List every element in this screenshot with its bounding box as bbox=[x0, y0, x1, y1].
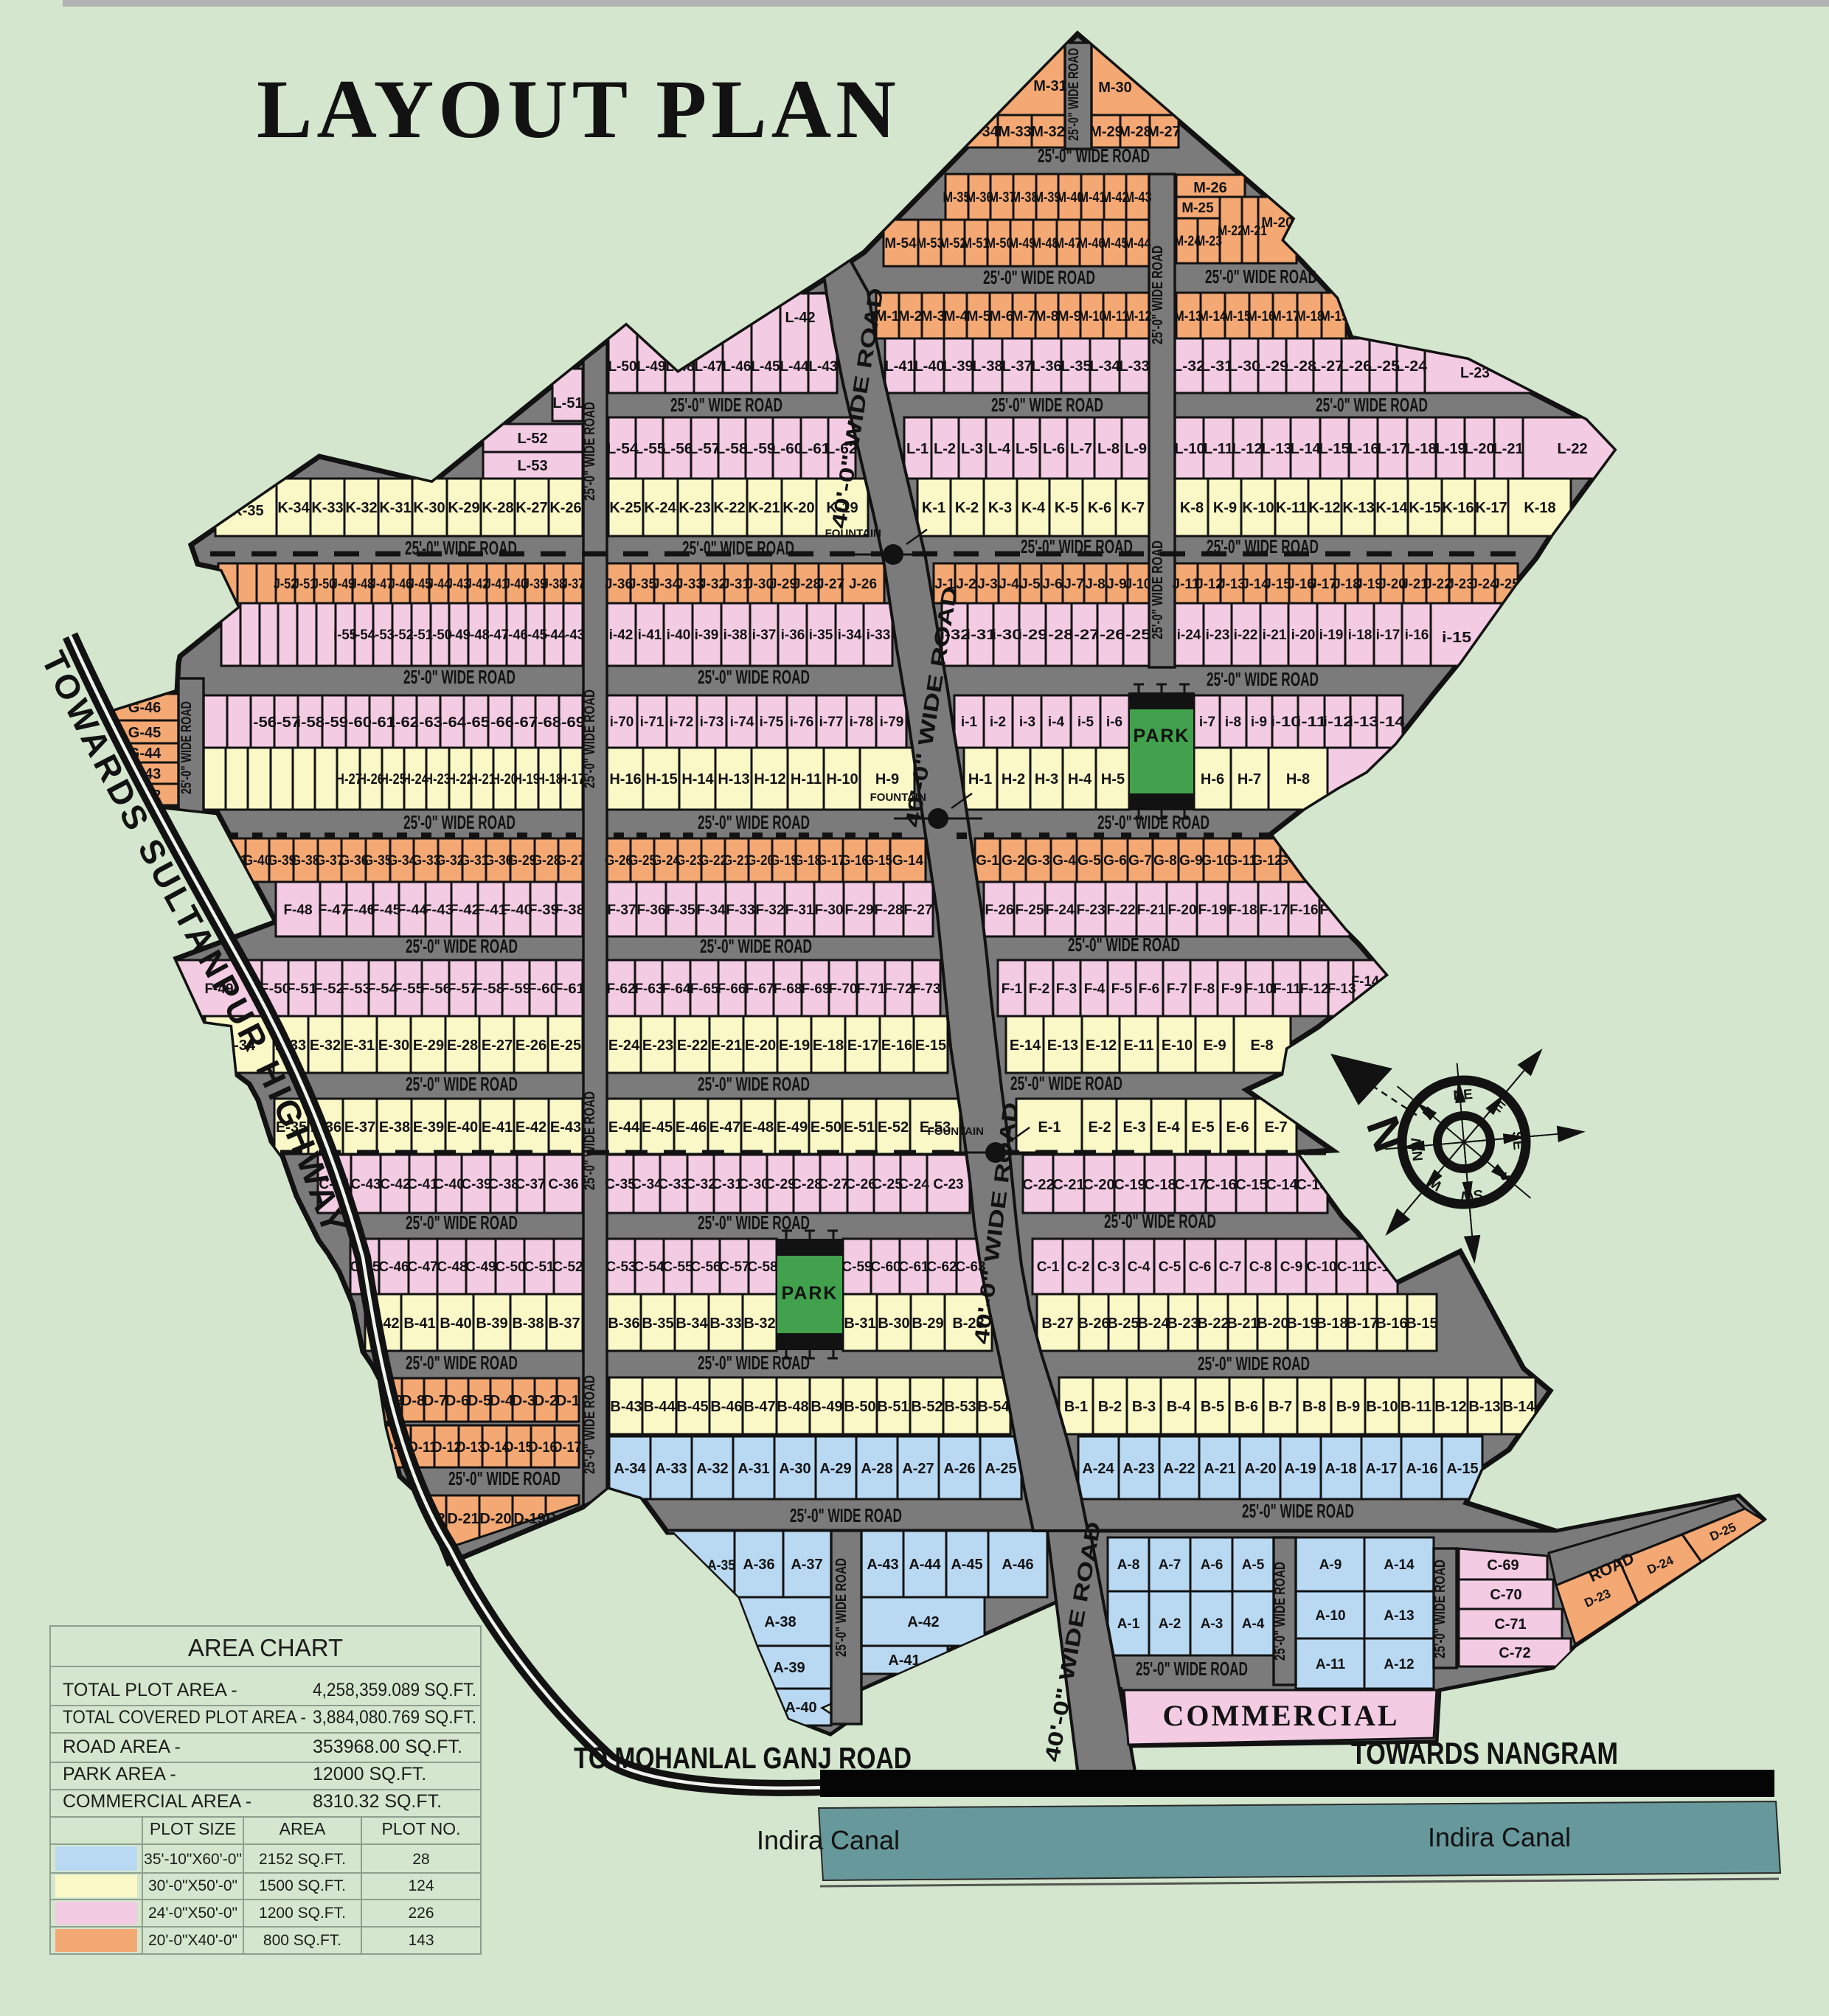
svg-text:K-7: K-7 bbox=[1121, 500, 1145, 516]
svg-text:L-12: L-12 bbox=[1232, 441, 1262, 457]
svg-text:E-12: E-12 bbox=[1086, 1037, 1117, 1054]
svg-text:A-36: A-36 bbox=[743, 1557, 774, 1573]
svg-text:L-15: L-15 bbox=[1319, 441, 1349, 457]
svg-text:25'-0" WIDE ROAD: 25'-0" WIDE ROAD bbox=[448, 1467, 560, 1490]
svg-text:C-46: C-46 bbox=[378, 1259, 409, 1275]
svg-text:K-16: K-16 bbox=[1442, 500, 1474, 516]
svg-text:25'-0" WIDE ROAD: 25'-0" WIDE ROAD bbox=[1316, 394, 1428, 416]
svg-text:NW: NW bbox=[1409, 1137, 1426, 1161]
svg-text:C-7: C-7 bbox=[1219, 1259, 1242, 1275]
svg-text:C-39: C-39 bbox=[461, 1177, 491, 1192]
svg-text:J-26: J-26 bbox=[849, 577, 877, 592]
svg-text:C-53: C-53 bbox=[605, 1259, 636, 1275]
svg-text:D-17: D-17 bbox=[553, 1439, 582, 1456]
svg-text:G-6: G-6 bbox=[1103, 853, 1127, 869]
svg-text:G-4: G-4 bbox=[1052, 853, 1076, 869]
svg-text:D-3: D-3 bbox=[512, 1393, 535, 1409]
svg-text:i-7: i-7 bbox=[1199, 715, 1215, 730]
svg-text:F-37: F-37 bbox=[607, 903, 636, 918]
svg-text:L-4: L-4 bbox=[988, 441, 1011, 457]
svg-text:25'-0" WIDE ROAD: 25'-0" WIDE ROAD bbox=[1432, 1560, 1448, 1658]
svg-text:F-70: F-70 bbox=[828, 981, 857, 997]
svg-text:25'-0" WIDE ROAD: 25'-0" WIDE ROAD bbox=[405, 537, 517, 559]
svg-text:L-51: L-51 bbox=[552, 395, 583, 411]
svg-text:G-5: G-5 bbox=[1077, 853, 1101, 869]
svg-text:K-13: K-13 bbox=[1342, 500, 1374, 516]
svg-text:M-27: M-27 bbox=[1147, 124, 1181, 140]
svg-text:F-20: F-20 bbox=[1167, 903, 1196, 918]
svg-text:B-45: B-45 bbox=[676, 1399, 708, 1415]
svg-text:L-35: L-35 bbox=[1061, 358, 1091, 375]
svg-text:B-27: B-27 bbox=[1041, 1315, 1073, 1332]
svg-text:PLOT NO.: PLOT NO. bbox=[382, 1819, 461, 1838]
svg-text:COMMERCIAL AREA -: COMMERCIAL AREA - bbox=[63, 1791, 251, 1812]
svg-text:i-78: i-78 bbox=[850, 715, 874, 730]
svg-text:H-14: H-14 bbox=[681, 771, 714, 788]
svg-text:E-8: E-8 bbox=[1250, 1037, 1273, 1054]
svg-text:A-3: A-3 bbox=[1201, 1616, 1224, 1632]
svg-text:F-26: F-26 bbox=[985, 903, 1013, 918]
svg-text:K-2: K-2 bbox=[955, 500, 979, 516]
svg-text:B-48: B-48 bbox=[777, 1399, 808, 1415]
svg-text:F-6: F-6 bbox=[1139, 981, 1160, 997]
svg-text:B-43: B-43 bbox=[610, 1399, 642, 1415]
svg-text:i-69: i-69 bbox=[557, 715, 585, 731]
svg-text:L-5: L-5 bbox=[1016, 441, 1038, 457]
svg-text:TOTAL COVERED PLOT AREA -: TOTAL COVERED PLOT AREA - bbox=[63, 1707, 306, 1728]
svg-text:B-21: B-21 bbox=[1226, 1315, 1258, 1332]
svg-text:K-5: K-5 bbox=[1055, 500, 1078, 516]
svg-text:H-10: H-10 bbox=[826, 771, 858, 788]
svg-text:J-9: J-9 bbox=[1106, 577, 1126, 592]
svg-text:K-21: K-21 bbox=[748, 500, 780, 516]
svg-text:i-18: i-18 bbox=[1348, 628, 1372, 643]
svg-text:353968.00 SQ.FT.: 353968.00 SQ.FT. bbox=[313, 1737, 462, 1757]
svg-text:25'-0" WIDE ROAD: 25'-0" WIDE ROAD bbox=[1150, 246, 1166, 344]
svg-text:L-41: L-41 bbox=[884, 358, 914, 375]
svg-text:D-5: D-5 bbox=[468, 1393, 491, 1409]
svg-text:25'-0" WIDE ROAD: 25'-0" WIDE ROAD bbox=[1242, 1500, 1354, 1522]
svg-text:25'-0" WIDE ROAD: 25'-0" WIDE ROAD bbox=[1010, 1072, 1122, 1094]
svg-text:L-40: L-40 bbox=[914, 358, 944, 375]
svg-text:L-34: L-34 bbox=[1089, 358, 1120, 375]
svg-text:D-2: D-2 bbox=[534, 1393, 558, 1409]
svg-text:F-25: F-25 bbox=[1015, 903, 1044, 918]
svg-text:25'-0" WIDE ROAD: 25'-0" WIDE ROAD bbox=[698, 1073, 810, 1095]
svg-text:B-40: B-40 bbox=[440, 1315, 471, 1332]
svg-text:A-40: A-40 bbox=[785, 1700, 816, 1716]
svg-text:K-33: K-33 bbox=[311, 500, 343, 516]
svg-text:K-28: K-28 bbox=[482, 500, 513, 516]
svg-text:M-6: M-6 bbox=[990, 309, 1014, 324]
svg-text:M-25: M-25 bbox=[1181, 201, 1214, 216]
svg-text:B-51: B-51 bbox=[877, 1399, 909, 1415]
svg-text:J-7: J-7 bbox=[1063, 577, 1083, 592]
svg-text:C-69: C-69 bbox=[1487, 1557, 1519, 1574]
svg-text:i-4: i-4 bbox=[1048, 715, 1065, 730]
svg-text:C-59: C-59 bbox=[841, 1259, 872, 1275]
svg-text:A-25: A-25 bbox=[985, 1461, 1016, 1477]
svg-text:L-19: L-19 bbox=[1435, 441, 1465, 457]
svg-text:C-42: C-42 bbox=[380, 1177, 410, 1192]
svg-text:E-30: E-30 bbox=[378, 1037, 409, 1054]
svg-text:1200 SQ.FT.: 1200 SQ.FT. bbox=[259, 1905, 346, 1922]
svg-text:i-17: i-17 bbox=[1376, 628, 1401, 643]
svg-text:C-47: C-47 bbox=[407, 1259, 437, 1275]
svg-text:B-25: B-25 bbox=[1107, 1315, 1139, 1332]
svg-text:C-52: C-52 bbox=[552, 1259, 583, 1275]
svg-text:i-73: i-73 bbox=[700, 715, 724, 730]
svg-text:25'-0" WIDE ROAD: 25'-0" WIDE ROAD bbox=[403, 666, 516, 688]
svg-text:A-4: A-4 bbox=[1242, 1616, 1265, 1632]
svg-text:K-23: K-23 bbox=[678, 500, 710, 516]
svg-text:B-53: B-53 bbox=[944, 1399, 976, 1415]
svg-text:K-12: K-12 bbox=[1308, 500, 1340, 516]
svg-text:C-20: C-20 bbox=[1083, 1177, 1114, 1193]
svg-text:C-48: C-48 bbox=[437, 1259, 467, 1275]
svg-text:H-8: H-8 bbox=[1286, 771, 1310, 788]
svg-text:i-74: i-74 bbox=[730, 715, 754, 730]
svg-text:25'-0" WIDE ROAD: 25'-0" WIDE ROAD bbox=[790, 1504, 902, 1526]
svg-text:F-72: F-72 bbox=[884, 981, 912, 997]
svg-text:20'-0"X40'-0": 20'-0"X40'-0" bbox=[148, 1932, 237, 1949]
svg-text:K-1: K-1 bbox=[922, 500, 945, 516]
svg-text:E-41: E-41 bbox=[482, 1119, 513, 1136]
svg-text:K-17: K-17 bbox=[1475, 500, 1507, 516]
svg-text:C-27: C-27 bbox=[818, 1177, 849, 1192]
svg-text:M-43: M-43 bbox=[1125, 190, 1152, 206]
svg-text:E-29: E-29 bbox=[413, 1037, 444, 1054]
svg-text:B-16: B-16 bbox=[1375, 1315, 1407, 1332]
svg-text:K-29: K-29 bbox=[448, 500, 479, 516]
svg-text:F-24: F-24 bbox=[1045, 903, 1075, 918]
svg-text:C-49: C-49 bbox=[465, 1259, 496, 1275]
svg-text:i-33: i-33 bbox=[867, 628, 891, 643]
svg-text:i-75: i-75 bbox=[760, 715, 784, 730]
svg-text:25'-0" WIDE ROAD: 25'-0" WIDE ROAD bbox=[403, 811, 516, 833]
svg-text:E-44: E-44 bbox=[608, 1119, 640, 1136]
svg-text:F-73: F-73 bbox=[912, 981, 940, 997]
svg-text:H-15: H-15 bbox=[645, 771, 677, 788]
svg-text:D-7: D-7 bbox=[423, 1393, 447, 1409]
svg-text:C-1: C-1 bbox=[1037, 1259, 1060, 1275]
svg-text:E-3: E-3 bbox=[1122, 1119, 1145, 1136]
svg-text:F-38: F-38 bbox=[554, 903, 585, 918]
svg-text:B-22: B-22 bbox=[1197, 1315, 1229, 1332]
svg-text:25'-0" WIDE ROAD: 25'-0" WIDE ROAD bbox=[406, 1352, 518, 1374]
svg-text:A-23: A-23 bbox=[1122, 1461, 1154, 1477]
svg-text:A-9: A-9 bbox=[1319, 1557, 1342, 1573]
svg-text:i-22: i-22 bbox=[1234, 628, 1258, 643]
svg-text:25'-0" WIDE ROAD: 25'-0" WIDE ROAD bbox=[406, 1212, 518, 1234]
svg-text:B-47: B-47 bbox=[743, 1399, 775, 1415]
svg-text:25'-0" WIDE ROAD: 25'-0" WIDE ROAD bbox=[1021, 535, 1133, 557]
svg-text:F-62: F-62 bbox=[606, 981, 635, 997]
svg-text:K-3: K-3 bbox=[988, 500, 1012, 516]
svg-text:K-11: K-11 bbox=[1276, 500, 1307, 516]
svg-text:E-15: E-15 bbox=[915, 1037, 946, 1054]
svg-text:A-33: A-33 bbox=[655, 1461, 687, 1477]
svg-text:i-21: i-21 bbox=[1263, 628, 1287, 643]
svg-text:25'-0" WIDE ROAD: 25'-0" WIDE ROAD bbox=[1097, 811, 1209, 833]
svg-text:E-32: E-32 bbox=[310, 1037, 341, 1054]
svg-text:25'-0" WIDE ROAD: 25'-0" WIDE ROAD bbox=[1198, 1352, 1310, 1374]
svg-text:C-3: C-3 bbox=[1097, 1259, 1120, 1275]
svg-text:C-6: C-6 bbox=[1189, 1259, 1212, 1275]
svg-text:25'-0" WIDE ROAD: 25'-0" WIDE ROAD bbox=[983, 266, 1095, 288]
svg-text:25'-0" WIDE ROAD: 25'-0" WIDE ROAD bbox=[698, 1352, 810, 1374]
svg-text:F-7: F-7 bbox=[1167, 981, 1188, 997]
svg-text:C-43: C-43 bbox=[350, 1177, 381, 1192]
svg-text:E-22: E-22 bbox=[677, 1037, 708, 1054]
svg-text:C-57: C-57 bbox=[719, 1259, 749, 1275]
svg-text:B-46: B-46 bbox=[710, 1399, 742, 1415]
svg-text:B-17: B-17 bbox=[1346, 1315, 1378, 1332]
svg-text:L-37: L-37 bbox=[1002, 358, 1032, 375]
svg-text:E-38: E-38 bbox=[379, 1119, 410, 1136]
svg-text:E-11: E-11 bbox=[1123, 1037, 1153, 1054]
svg-text:G-27: G-27 bbox=[557, 853, 586, 869]
svg-text:E-10: E-10 bbox=[1162, 1037, 1193, 1054]
svg-text:E-47: E-47 bbox=[709, 1119, 740, 1136]
svg-text:C-11: C-11 bbox=[1337, 1259, 1367, 1275]
svg-text:A-30: A-30 bbox=[779, 1461, 811, 1477]
svg-text:25'-0" WIDE ROAD: 25'-0" WIDE ROAD bbox=[698, 666, 810, 688]
svg-text:F-65: F-65 bbox=[690, 981, 719, 997]
svg-text:K-8: K-8 bbox=[1180, 500, 1204, 516]
svg-text:K-32: K-32 bbox=[345, 500, 377, 516]
svg-text:L-9: L-9 bbox=[1125, 441, 1147, 457]
svg-text:M-3: M-3 bbox=[921, 309, 945, 324]
svg-text:E-49: E-49 bbox=[777, 1119, 808, 1136]
svg-text:K-24: K-24 bbox=[644, 500, 676, 516]
svg-text:25'-0" WIDE ROAD: 25'-0" WIDE ROAD bbox=[1150, 541, 1166, 639]
svg-text:L-22: L-22 bbox=[1557, 441, 1587, 457]
svg-text:L-21: L-21 bbox=[1493, 441, 1523, 457]
svg-text:C-24: C-24 bbox=[898, 1177, 929, 1192]
svg-text:B-4: B-4 bbox=[1167, 1399, 1191, 1415]
svg-text:C-62: C-62 bbox=[926, 1259, 957, 1275]
svg-text:PARK AREA -: PARK AREA - bbox=[63, 1764, 176, 1784]
svg-text:H-13: H-13 bbox=[718, 771, 749, 788]
svg-text:L-43: L-43 bbox=[808, 359, 837, 375]
svg-text:G-14: G-14 bbox=[892, 853, 924, 869]
svg-text:J-5: J-5 bbox=[1020, 577, 1041, 592]
svg-text:D-19: D-19 bbox=[513, 1511, 545, 1527]
svg-text:E-2: E-2 bbox=[1088, 1119, 1111, 1136]
svg-text:E-40: E-40 bbox=[447, 1119, 478, 1136]
svg-text:F-67: F-67 bbox=[745, 981, 774, 997]
svg-text:A-28: A-28 bbox=[861, 1461, 892, 1477]
svg-text:E-51: E-51 bbox=[844, 1119, 875, 1136]
svg-text:E-18: E-18 bbox=[813, 1037, 844, 1054]
svg-text:C-70: C-70 bbox=[1490, 1587, 1521, 1603]
svg-text:C-36: C-36 bbox=[548, 1177, 578, 1192]
svg-text:i-16: i-16 bbox=[1405, 628, 1429, 643]
svg-text:L-42: L-42 bbox=[785, 310, 815, 326]
svg-text:J-3: J-3 bbox=[977, 577, 997, 592]
svg-text:F-31: F-31 bbox=[785, 903, 814, 918]
svg-text:F-69: F-69 bbox=[801, 981, 830, 997]
svg-text:D-8: D-8 bbox=[401, 1393, 425, 1409]
svg-text:H-1: H-1 bbox=[968, 771, 992, 788]
svg-text:K-15: K-15 bbox=[1409, 500, 1440, 516]
svg-text:TOWARDS NANGRAM: TOWARDS NANGRAM bbox=[1351, 1736, 1618, 1770]
svg-text:B-36: B-36 bbox=[608, 1315, 639, 1332]
svg-text:FOUNTAIN: FOUNTAIN bbox=[825, 527, 881, 540]
svg-text:K-31: K-31 bbox=[379, 500, 411, 516]
svg-text:800 SQ.FT.: 800 SQ.FT. bbox=[263, 1932, 341, 1949]
svg-text:C-60: C-60 bbox=[870, 1259, 900, 1275]
svg-text:E-17: E-17 bbox=[847, 1037, 878, 1054]
svg-text:M-26: M-26 bbox=[1193, 180, 1227, 196]
svg-text:12000 SQ.FT.: 12000 SQ.FT. bbox=[313, 1764, 426, 1784]
svg-text:F-5: F-5 bbox=[1111, 981, 1133, 997]
svg-text:A-15: A-15 bbox=[1446, 1461, 1478, 1477]
svg-text:K-6: K-6 bbox=[1088, 500, 1111, 516]
svg-text:L-6: L-6 bbox=[1043, 441, 1065, 457]
svg-text:C-9: C-9 bbox=[1280, 1259, 1303, 1275]
svg-text:D-20: D-20 bbox=[479, 1511, 511, 1527]
svg-text:B-41: B-41 bbox=[403, 1315, 435, 1332]
svg-text:B-18: B-18 bbox=[1316, 1315, 1347, 1332]
svg-text:A-32: A-32 bbox=[696, 1461, 728, 1477]
svg-text:F-16: F-16 bbox=[1289, 903, 1318, 918]
svg-text:L-18: L-18 bbox=[1406, 441, 1436, 457]
svg-text:M-54: M-54 bbox=[884, 236, 917, 251]
svg-text:F-19: F-19 bbox=[1198, 903, 1226, 918]
svg-text:C-10: C-10 bbox=[1306, 1259, 1336, 1275]
svg-text:A-11: A-11 bbox=[1316, 1657, 1346, 1672]
svg-text:E-31: E-31 bbox=[344, 1037, 375, 1054]
svg-text:C-8: C-8 bbox=[1249, 1259, 1272, 1275]
svg-text:L-24: L-24 bbox=[1395, 358, 1428, 375]
svg-text:i-77: i-77 bbox=[819, 715, 844, 730]
svg-text:i-43: i-43 bbox=[561, 628, 585, 643]
svg-text:C-4: C-4 bbox=[1128, 1259, 1150, 1275]
svg-text:K-14: K-14 bbox=[1375, 500, 1408, 516]
svg-text:B-7: B-7 bbox=[1268, 1399, 1292, 1415]
svg-text:B-54: B-54 bbox=[977, 1399, 1010, 1415]
svg-text:TOTAL PLOT AREA -: TOTAL PLOT AREA - bbox=[63, 1680, 237, 1700]
svg-text:i-35: i-35 bbox=[809, 628, 833, 643]
svg-text:C-51: C-51 bbox=[524, 1259, 555, 1275]
svg-text:A-39: A-39 bbox=[773, 1660, 805, 1676]
svg-text:A-17: A-17 bbox=[1365, 1461, 1397, 1477]
svg-text:25'-0" WIDE ROAD: 25'-0" WIDE ROAD bbox=[1068, 934, 1180, 956]
svg-text:H-2: H-2 bbox=[1002, 771, 1025, 788]
svg-text:A-37: A-37 bbox=[791, 1557, 822, 1573]
svg-text:i-70: i-70 bbox=[610, 715, 634, 730]
svg-text:F-8: F-8 bbox=[1194, 981, 1215, 997]
svg-text:B-19: B-19 bbox=[1286, 1315, 1318, 1332]
svg-text:B-2: B-2 bbox=[1098, 1399, 1122, 1415]
svg-text:H-4: H-4 bbox=[1068, 771, 1092, 788]
svg-text:G-45: G-45 bbox=[128, 725, 161, 741]
svg-text:K-18: K-18 bbox=[1524, 500, 1555, 516]
svg-text:M-9: M-9 bbox=[1058, 309, 1082, 324]
svg-text:J-27: J-27 bbox=[816, 577, 844, 592]
svg-text:A-2: A-2 bbox=[1159, 1616, 1181, 1632]
svg-text:A-42: A-42 bbox=[907, 1614, 939, 1630]
svg-text:25'-0" WIDE ROAD: 25'-0" WIDE ROAD bbox=[700, 935, 812, 957]
svg-text:L-39: L-39 bbox=[943, 358, 973, 375]
svg-text:E-7: E-7 bbox=[1264, 1119, 1287, 1136]
svg-text:L-20: L-20 bbox=[1464, 441, 1494, 457]
svg-text:B-10: B-10 bbox=[1366, 1399, 1398, 1415]
svg-text:i-24: i-24 bbox=[1177, 628, 1201, 643]
svg-text:i-40: i-40 bbox=[667, 628, 691, 643]
svg-text:A-12: A-12 bbox=[1384, 1657, 1414, 1672]
svg-text:8310.32 SQ.FT.: 8310.32 SQ.FT. bbox=[313, 1791, 442, 1812]
svg-text:C-16: C-16 bbox=[1204, 1177, 1236, 1193]
svg-text:B-1: B-1 bbox=[1064, 1399, 1088, 1415]
svg-text:M-12: M-12 bbox=[1125, 309, 1152, 324]
svg-text:25'-0" WIDE ROAD: 25'-0" WIDE ROAD bbox=[1272, 1562, 1288, 1661]
svg-text:C-58: C-58 bbox=[747, 1259, 777, 1275]
svg-text:i-14: i-14 bbox=[1375, 715, 1406, 730]
svg-text:E-52: E-52 bbox=[878, 1119, 909, 1136]
svg-text:K-4: K-4 bbox=[1021, 500, 1046, 516]
svg-text:C-19: C-19 bbox=[1114, 1177, 1145, 1193]
svg-text:B-11: B-11 bbox=[1401, 1399, 1431, 1415]
svg-text:A-29: A-29 bbox=[819, 1461, 851, 1477]
svg-text:A-18: A-18 bbox=[1325, 1461, 1356, 1477]
svg-text:B-15: B-15 bbox=[1406, 1315, 1437, 1332]
svg-text:TO MOHANLAL GANJ ROAD: TO MOHANLAL GANJ ROAD bbox=[574, 1741, 912, 1775]
svg-text:L-45: L-45 bbox=[751, 359, 780, 375]
svg-text:K-10: K-10 bbox=[1242, 500, 1274, 516]
svg-text:B-14: B-14 bbox=[1502, 1399, 1535, 1415]
svg-text:i-23: i-23 bbox=[1206, 628, 1230, 643]
svg-text:F-22: F-22 bbox=[1106, 903, 1135, 918]
svg-text:A-26: A-26 bbox=[943, 1461, 975, 1477]
svg-text:E-45: E-45 bbox=[642, 1119, 673, 1136]
svg-text:A-10: A-10 bbox=[1315, 1608, 1345, 1624]
svg-text:J-6: J-6 bbox=[1042, 577, 1062, 592]
svg-text:C-37: C-37 bbox=[515, 1177, 545, 1192]
svg-text:G-15: G-15 bbox=[864, 853, 892, 869]
svg-text:B-44: B-44 bbox=[643, 1399, 676, 1415]
svg-text:PLOT SIZE: PLOT SIZE bbox=[150, 1819, 236, 1838]
svg-text:F-3: F-3 bbox=[1056, 981, 1077, 997]
svg-text:C-71: C-71 bbox=[1494, 1616, 1526, 1633]
svg-text:25'-0" WIDE ROAD: 25'-0" WIDE ROAD bbox=[1207, 668, 1319, 690]
svg-text:C-33: C-33 bbox=[658, 1177, 689, 1192]
svg-text:E-23: E-23 bbox=[642, 1037, 673, 1054]
svg-text:J-10: J-10 bbox=[1125, 577, 1151, 592]
svg-text:A-46: A-46 bbox=[1002, 1557, 1033, 1573]
svg-text:E-28: E-28 bbox=[447, 1037, 478, 1054]
svg-text:i-5: i-5 bbox=[1077, 715, 1094, 730]
svg-text:K-34: K-34 bbox=[277, 500, 310, 516]
svg-text:F-4: F-4 bbox=[1084, 981, 1106, 997]
svg-text:H-12: H-12 bbox=[754, 771, 785, 788]
svg-text:i-19: i-19 bbox=[1319, 628, 1344, 643]
svg-text:F-10: F-10 bbox=[1244, 981, 1273, 997]
svg-text:M-44: M-44 bbox=[1124, 236, 1151, 251]
svg-text:C-56: C-56 bbox=[690, 1259, 721, 1275]
svg-text:PARK: PARK bbox=[1134, 726, 1190, 746]
svg-text:A-5: A-5 bbox=[1242, 1557, 1265, 1573]
svg-text:L-8: L-8 bbox=[1097, 441, 1120, 457]
svg-text:A-8: A-8 bbox=[1117, 1557, 1140, 1573]
svg-text:B-34: B-34 bbox=[676, 1315, 708, 1332]
svg-text:G-8: G-8 bbox=[1153, 853, 1177, 869]
svg-text:A-14: A-14 bbox=[1384, 1557, 1415, 1573]
svg-text:F-48: F-48 bbox=[283, 903, 312, 918]
svg-text:L-36: L-36 bbox=[1031, 358, 1061, 375]
